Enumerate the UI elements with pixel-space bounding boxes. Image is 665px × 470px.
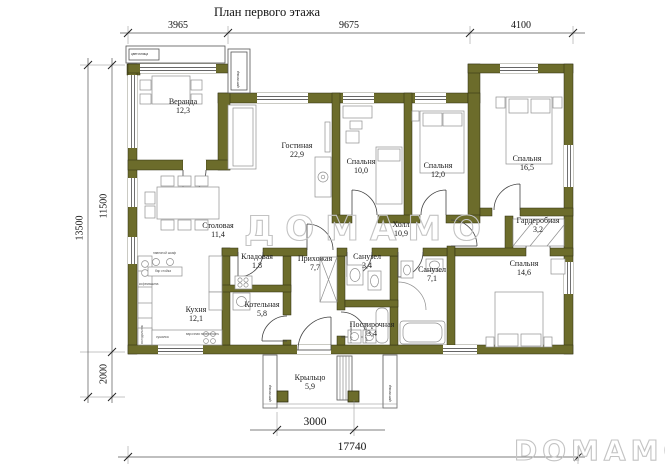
dim-left-upper: 11500	[99, 194, 110, 219]
dim-left-total: 13500	[75, 216, 86, 241]
floor-plan-page: План первого этажа ДОМАМО DOMAMO Веранда…	[0, 0, 665, 470]
room-label-porch: Крыльцо5,9	[295, 374, 326, 392]
room-label-wardrobe: Гардеробная3,2	[516, 217, 559, 235]
room-label-veranda: Веранда12,3	[169, 98, 197, 116]
room-label-bedroom-14: Спальня14,6	[510, 260, 539, 278]
dim-total: 17740	[338, 441, 367, 453]
room-label-bathroom-2: Санузел7,1	[418, 266, 446, 284]
room-label-entry-hall: Прихожая7,7	[298, 255, 332, 273]
room-label-living-room: Гостиная22,9	[282, 142, 313, 160]
label-washing-machine: стир. машина	[349, 323, 353, 343]
label-coffee-machine: кофемашина	[139, 282, 158, 286]
planter-label-veranda: цветочница	[236, 71, 240, 88]
planter-label-top: цветочница	[131, 52, 148, 56]
room-label-bedroom-16: Спальня16,5	[513, 155, 542, 173]
dim-top-3: 4100	[511, 20, 531, 31]
room-label-laundry: Постирочная3,4	[350, 321, 395, 339]
planter-label-porch-left: цветочница	[268, 385, 272, 402]
page-title: План первого этажа	[214, 5, 320, 20]
room-label-kitchen: Кухня12,1	[186, 306, 207, 324]
room-label-hall: Холл10,9	[392, 221, 409, 239]
label-fridge: холодильник	[140, 325, 144, 344]
room-label-pantry: Кладовая1,8	[241, 253, 273, 271]
label-cooktop: варочная поверхность	[186, 332, 219, 336]
room-label-bedroom-12: Спальня12,0	[424, 162, 453, 180]
label-bar-counter: бар стойка	[155, 269, 171, 273]
planter-label-porch-right: цветочница	[388, 385, 392, 402]
watermark-center: ДОМАМО	[244, 209, 492, 249]
dim-porch: 3000	[304, 416, 327, 428]
room-label-boiler-room: Котельная5,8	[244, 301, 279, 319]
room-label-bathroom-1: Санузел3,4	[353, 253, 381, 271]
dim-left-lower: 2000	[99, 364, 110, 384]
label-drying-machine: суш. машина	[364, 324, 368, 343]
label-wall-cabinet: навесной шкаф	[153, 251, 176, 255]
dim-top-2: 9675	[339, 20, 359, 31]
room-label-dining-room: Столовая11,4	[202, 222, 233, 240]
watermark-corner: DOMAMO	[514, 434, 665, 467]
dim-top-1: 3965	[168, 20, 188, 31]
label-dryer-rack: сушилка	[156, 335, 169, 339]
room-label-bedroom-10: Спальня10,0	[347, 158, 376, 176]
